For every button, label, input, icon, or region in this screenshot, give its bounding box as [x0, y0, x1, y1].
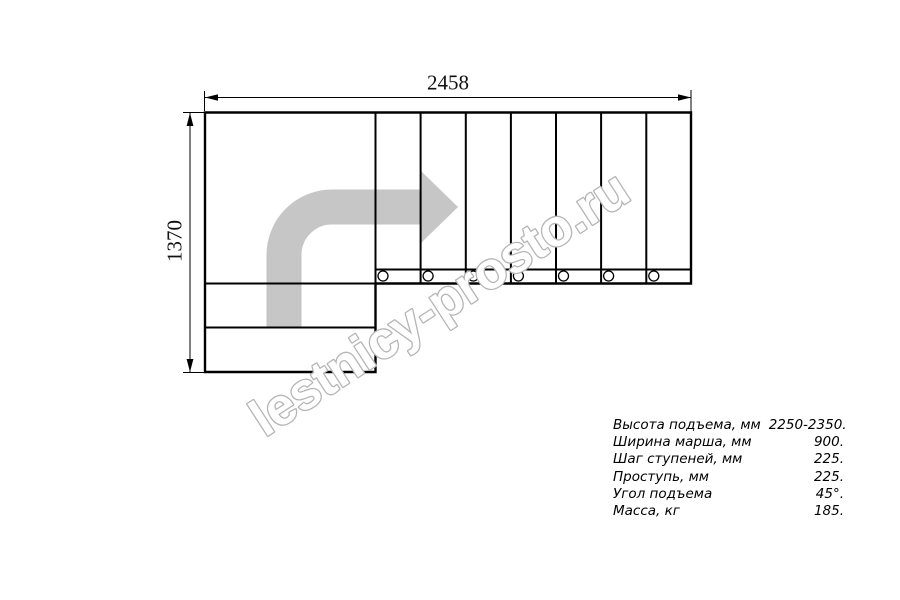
baluster-circle — [378, 271, 388, 281]
spec-value: 45°. — [816, 486, 844, 503]
spec-value: 225. — [814, 469, 844, 486]
staircase-drawing-page: lestnicy-prosto.ru 2458 1370 Высота подъ… — [0, 0, 900, 600]
height-dimension-value: 1370 — [163, 220, 188, 262]
dim-arrow-up-icon — [187, 113, 194, 126]
spec-row: Угол подъема 45°. — [613, 486, 844, 503]
spec-row: Шаг ступеней, мм 225. — [613, 451, 844, 468]
width-dimension-value: 2458 — [427, 71, 469, 96]
spec-row: Проступь, мм 225. — [613, 469, 844, 486]
direction-arrow-head-icon — [421, 171, 458, 243]
spec-row: Высота подъема, мм 2250-2350. — [613, 417, 844, 434]
spec-value: 2250-2350. — [769, 417, 847, 434]
spec-label: Шаг ступеней, мм — [613, 451, 742, 468]
dim-arrow-down-icon — [187, 359, 194, 372]
dim-arrow-left-icon — [205, 94, 218, 101]
spec-value: 900. — [814, 434, 844, 451]
spec-label: Высота подъема, мм — [613, 417, 761, 434]
spec-row: Ширина марша, мм 900. — [613, 434, 844, 451]
spec-label: Масса, кг — [613, 503, 680, 520]
spec-label: Ширина марша, мм — [613, 434, 752, 451]
dim-arrow-right-icon — [678, 94, 691, 101]
spec-row: Масса, кг 185. — [613, 503, 844, 520]
spec-table: Высота подъема, мм 2250-2350. Ширина мар… — [613, 417, 844, 520]
spec-value: 185. — [814, 503, 844, 520]
spec-label: Проступь, мм — [613, 469, 709, 486]
baluster-circle — [649, 271, 659, 281]
spec-label: Угол подъема — [613, 486, 712, 503]
baluster-circle — [559, 271, 569, 281]
baluster-circle — [604, 271, 614, 281]
spec-value: 225. — [814, 451, 844, 468]
